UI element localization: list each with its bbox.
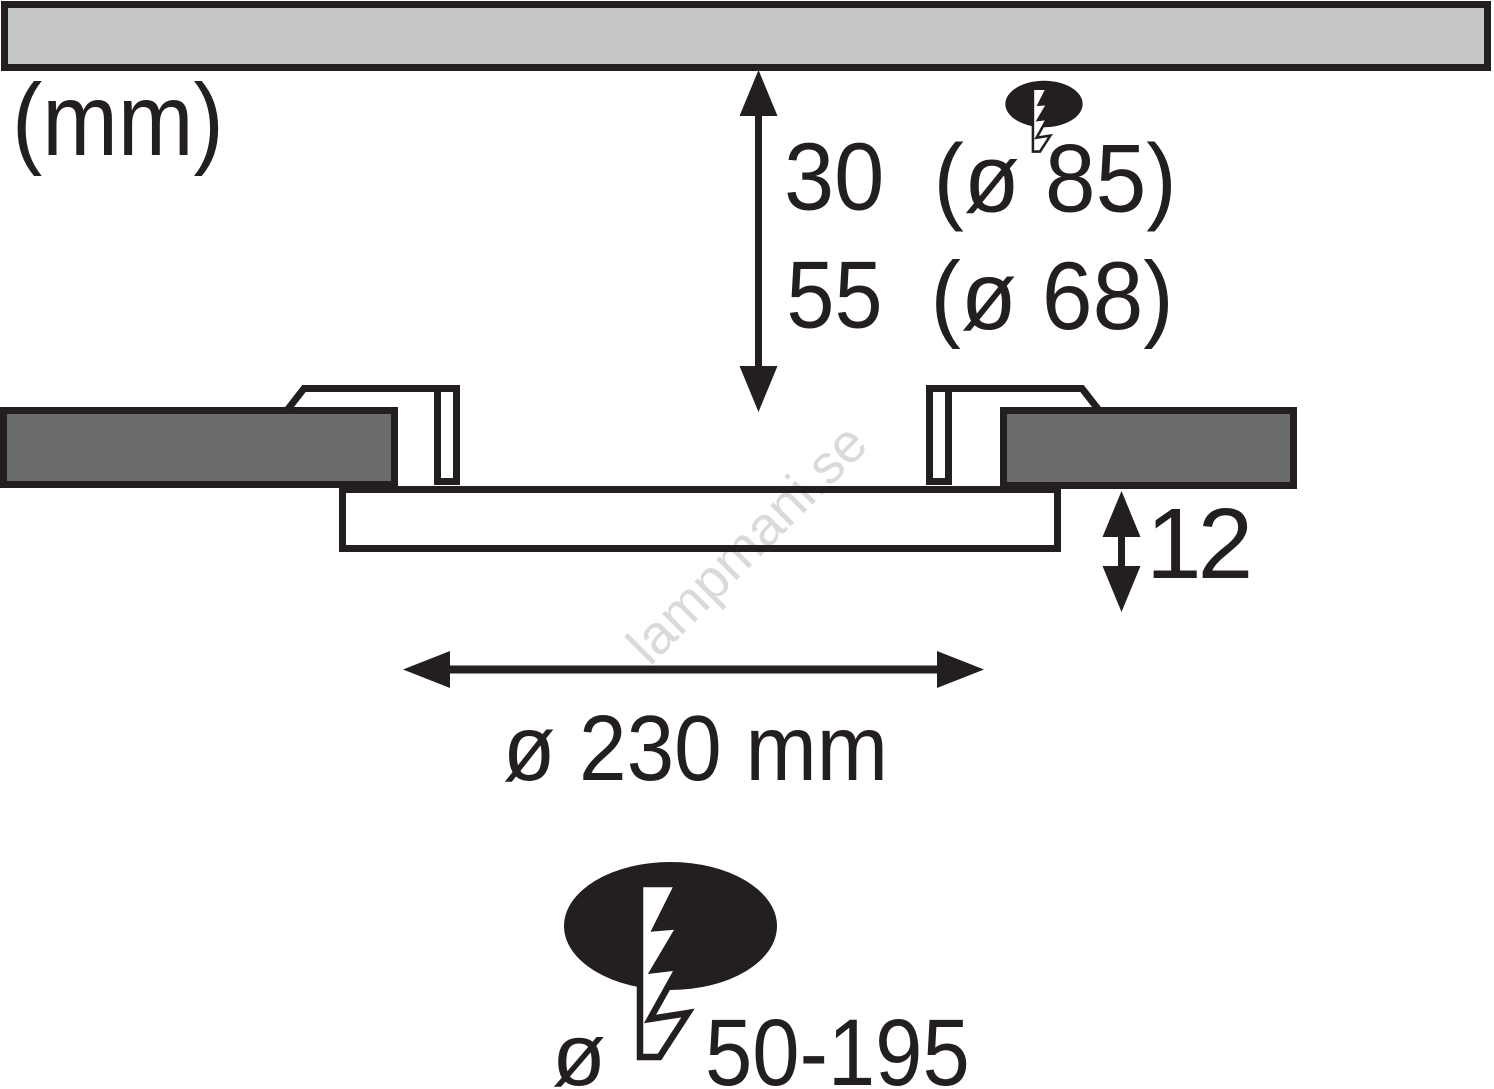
svg-text:30: 30 <box>784 123 884 230</box>
svg-text:12: 12 <box>1146 488 1249 600</box>
svg-text:50-195: 50-195 <box>705 1001 970 1089</box>
svg-text:ø 230 mm: ø 230 mm <box>503 696 888 800</box>
svg-text:55: 55 <box>786 241 882 348</box>
svg-text:(ø 85): (ø 85) <box>934 124 1177 232</box>
svg-text:(ø 68): (ø 68) <box>931 241 1174 349</box>
svg-text:ø: ø <box>552 1005 606 1089</box>
svg-text:(mm): (mm) <box>12 64 224 177</box>
